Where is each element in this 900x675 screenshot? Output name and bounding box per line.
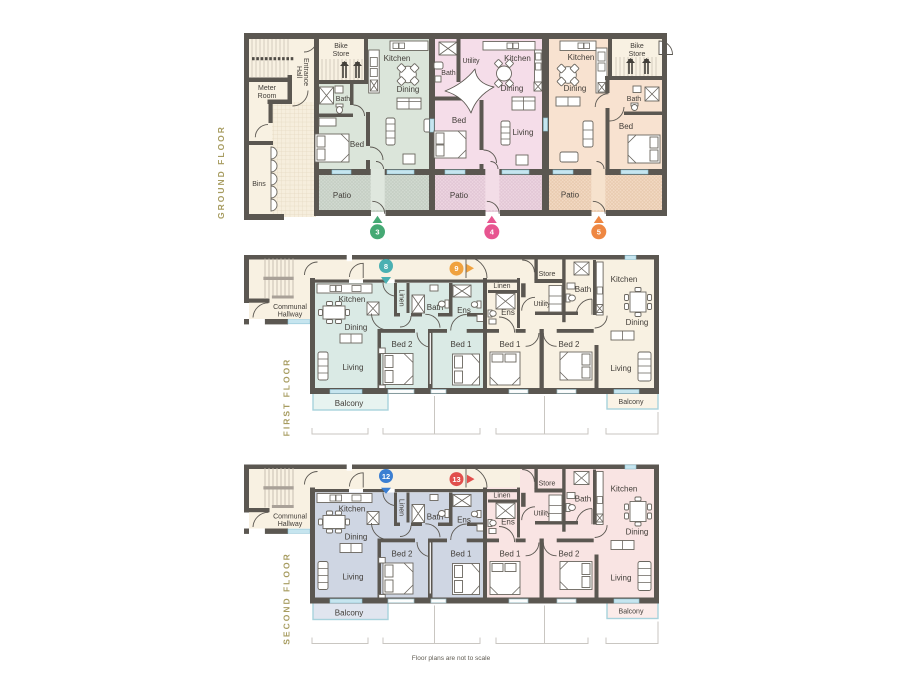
svg-text:Patio: Patio (450, 191, 469, 200)
svg-text:GROUND FLOOR: GROUND FLOOR (216, 125, 226, 219)
svg-text:FIRST FLOOR: FIRST FLOOR (282, 358, 292, 437)
svg-text:Utility: Utility (462, 58, 480, 65)
svg-text:Patio: Patio (561, 191, 580, 200)
svg-text:Store: Store (629, 51, 646, 58)
svg-text:13: 13 (452, 475, 460, 484)
svg-text:Hall: Hall (295, 66, 302, 79)
svg-text:Dining: Dining (501, 84, 524, 93)
svg-text:3: 3 (375, 228, 379, 237)
svg-text:Bath: Bath (441, 70, 456, 77)
svg-text:Room: Room (258, 93, 277, 100)
svg-text:Floor plans are not to scale: Floor plans are not to scale (412, 655, 491, 662)
svg-text:Bed: Bed (619, 122, 633, 131)
svg-text:Dining: Dining (397, 85, 420, 94)
svg-text:Bike: Bike (334, 43, 348, 50)
svg-text:9: 9 (454, 264, 458, 273)
svg-text:Entrance: Entrance (302, 58, 309, 86)
svg-text:5: 5 (597, 228, 601, 237)
svg-text:Patio: Patio (333, 191, 352, 200)
svg-text:12: 12 (382, 472, 390, 481)
svg-text:Bath: Bath (627, 96, 642, 103)
svg-text:Bed: Bed (452, 116, 466, 125)
svg-text:Bath: Bath (336, 96, 351, 103)
svg-text:Meter: Meter (258, 85, 277, 92)
svg-text:Living: Living (513, 128, 534, 137)
svg-text:8: 8 (384, 262, 388, 271)
svg-text:Store: Store (333, 51, 350, 58)
svg-text:Dining: Dining (564, 84, 587, 93)
svg-text:Kitchen: Kitchen (384, 54, 411, 63)
svg-text:Bins: Bins (252, 181, 266, 188)
svg-text:Bed: Bed (350, 140, 364, 149)
svg-text:Kitchen: Kitchen (568, 53, 595, 62)
svg-text:SECOND FLOOR: SECOND FLOOR (282, 552, 292, 644)
svg-text:Bike: Bike (630, 43, 644, 50)
